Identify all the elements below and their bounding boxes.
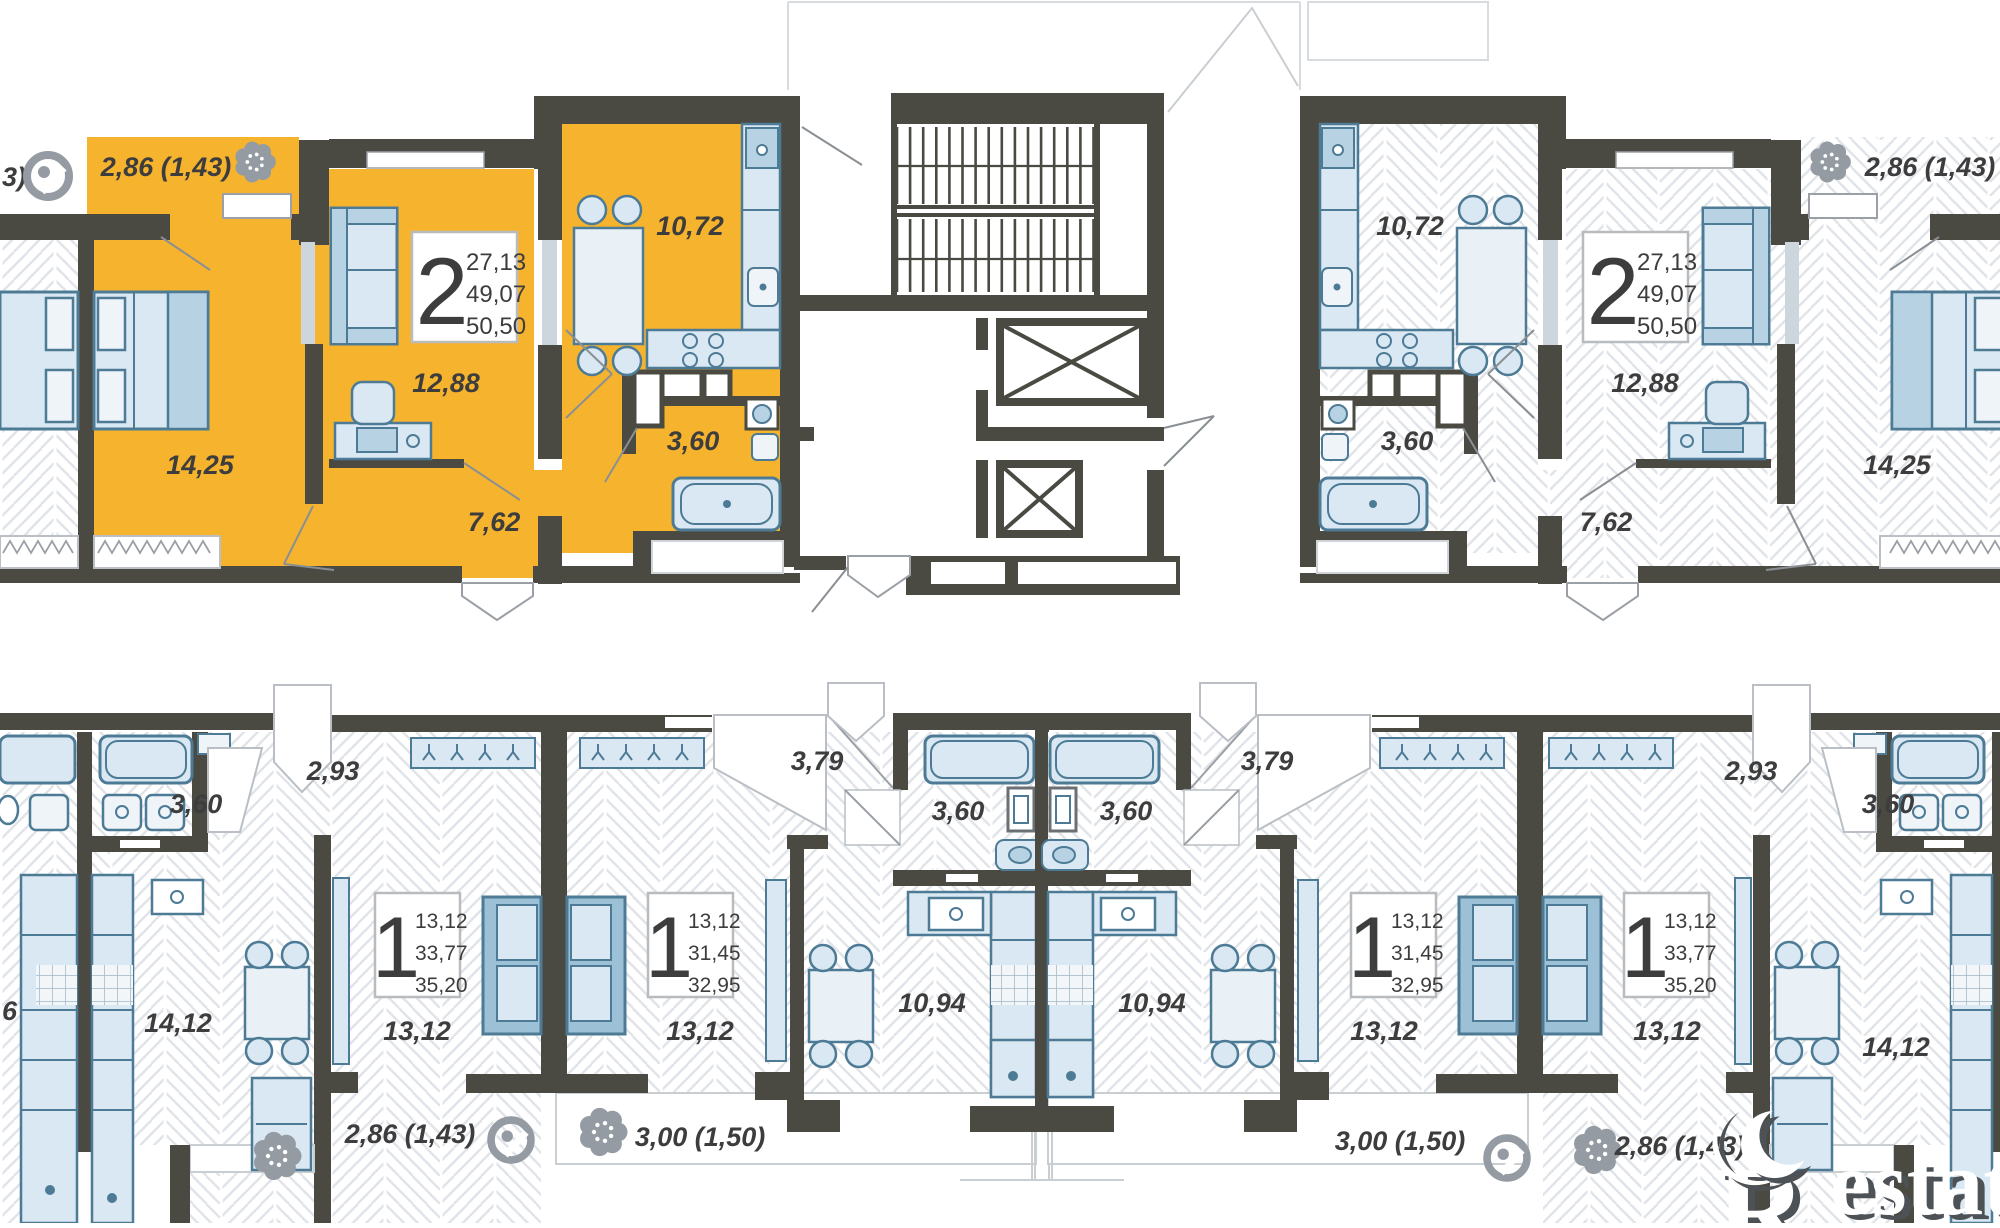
svg-text:7,62: 7,62 <box>1580 507 1633 537</box>
svg-text:50,50: 50,50 <box>466 313 526 340</box>
svg-text:13,12: 13,12 <box>1391 910 1444 933</box>
svg-text:12,88: 12,88 <box>412 368 480 398</box>
svg-text:2,86 (1,43): 2,86 (1,43) <box>1864 152 1996 182</box>
svg-text:3,60: 3,60 <box>932 796 985 826</box>
svg-text:14,12: 14,12 <box>1862 1032 1930 1062</box>
svg-text:27,13: 27,13 <box>466 249 526 276</box>
svg-text:13,12: 13,12 <box>383 1016 451 1046</box>
svg-text:27,13: 27,13 <box>1637 249 1697 276</box>
svg-text:10,72: 10,72 <box>1376 211 1444 241</box>
svg-text:31,45: 31,45 <box>1391 942 1444 965</box>
svg-text:estate: estate <box>1830 1132 2000 1223</box>
svg-text:13,12: 13,12 <box>1350 1016 1418 1046</box>
svg-text:33,77: 33,77 <box>415 942 468 965</box>
svg-text:14,25: 14,25 <box>1863 450 1932 480</box>
svg-text:2,86 (1,43): 2,86 (1,43) <box>100 152 232 182</box>
svg-text:14,12: 14,12 <box>144 1008 212 1038</box>
svg-text:31,45: 31,45 <box>688 942 741 965</box>
svg-text:1: 1 <box>645 900 693 996</box>
svg-text:6: 6 <box>2 996 18 1026</box>
svg-text:3,60: 3,60 <box>1100 796 1153 826</box>
svg-text:7,62: 7,62 <box>468 507 521 537</box>
svg-text:12,88: 12,88 <box>1611 368 1679 398</box>
svg-text:2: 2 <box>416 239 469 345</box>
svg-text:10,94: 10,94 <box>898 988 966 1018</box>
svg-text:49,07: 49,07 <box>466 281 526 308</box>
svg-text:32,95: 32,95 <box>688 974 741 997</box>
svg-text:3,60: 3,60 <box>170 789 223 819</box>
svg-text:13,12: 13,12 <box>666 1016 734 1046</box>
svg-text:3,60: 3,60 <box>1862 789 1915 819</box>
svg-text:13,12: 13,12 <box>415 910 468 933</box>
svg-text:10,94: 10,94 <box>1118 988 1186 1018</box>
svg-text:3): 3) <box>2 162 26 192</box>
svg-text:14,25: 14,25 <box>166 450 235 480</box>
svg-text:13,12: 13,12 <box>688 910 741 933</box>
svg-text:50,50: 50,50 <box>1637 313 1697 340</box>
svg-text:32,95: 32,95 <box>1391 974 1444 997</box>
svg-text:1: 1 <box>1348 900 1396 996</box>
svg-text:2,93: 2,93 <box>306 756 360 786</box>
svg-text:35,20: 35,20 <box>415 974 468 997</box>
svg-text:3,00 (1,50): 3,00 (1,50) <box>1335 1126 1466 1156</box>
svg-text:1: 1 <box>1621 900 1669 996</box>
svg-text:1: 1 <box>372 900 420 996</box>
svg-text:10,72: 10,72 <box>656 211 724 241</box>
svg-text:3,00 (1,50): 3,00 (1,50) <box>635 1122 766 1152</box>
svg-text:3,60: 3,60 <box>667 426 720 456</box>
svg-text:13,12: 13,12 <box>1664 910 1717 933</box>
svg-text:3,79: 3,79 <box>791 746 844 776</box>
svg-text:3,79: 3,79 <box>1241 746 1294 776</box>
svg-text:13,12: 13,12 <box>1633 1016 1701 1046</box>
svg-text:49,07: 49,07 <box>1637 281 1697 308</box>
svg-text:2,93: 2,93 <box>1724 756 1778 786</box>
svg-text:2: 2 <box>1587 239 1640 345</box>
svg-text:3,60: 3,60 <box>1381 426 1434 456</box>
svg-text:33,77: 33,77 <box>1664 942 1717 965</box>
svg-text:35,20: 35,20 <box>1664 974 1717 997</box>
svg-text:2,86 (1,43): 2,86 (1,43) <box>344 1119 476 1149</box>
